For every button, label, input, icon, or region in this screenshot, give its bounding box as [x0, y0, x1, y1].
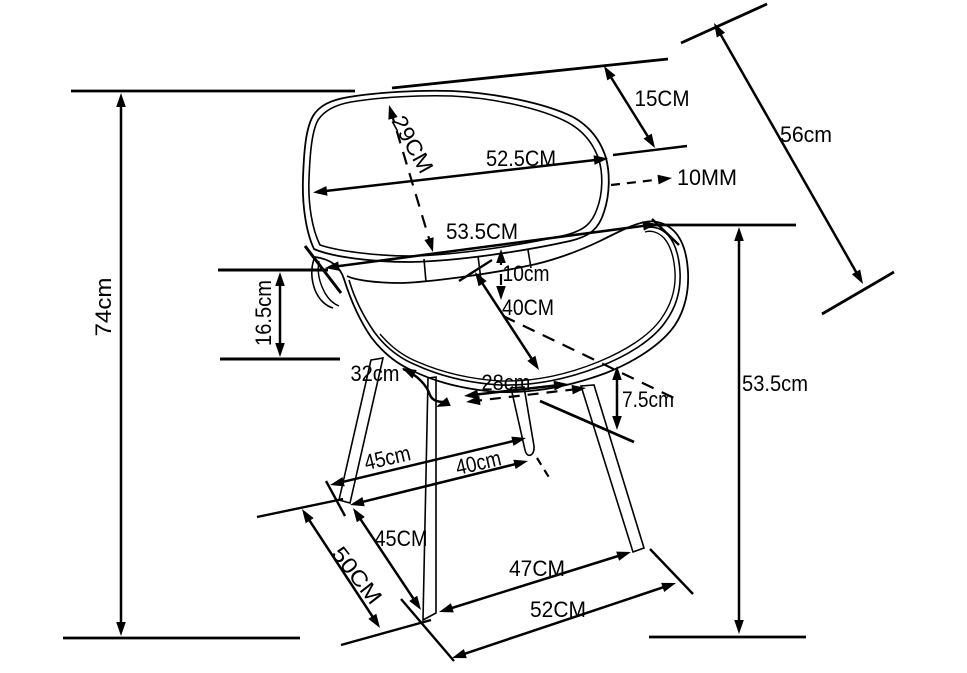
svg-text:74cm: 74cm [91, 278, 116, 337]
svg-text:45CM: 45CM [375, 526, 428, 551]
svg-text:56cm: 56cm [780, 122, 832, 147]
svg-text:15CM: 15CM [635, 86, 690, 111]
svg-text:28cm: 28cm [482, 370, 531, 395]
svg-text:53.5CM: 53.5CM [446, 219, 518, 244]
svg-text:10MM: 10MM [677, 165, 737, 190]
svg-text:29CM: 29CM [387, 111, 439, 177]
svg-text:16.5cm: 16.5cm [251, 280, 276, 346]
svg-text:7.5cm: 7.5cm [622, 387, 674, 412]
svg-text:52.5CM: 52.5CM [486, 146, 556, 171]
svg-text:53.5cm: 53.5cm [742, 371, 808, 396]
svg-text:50CM: 50CM [327, 542, 387, 609]
svg-text:47CM: 47CM [509, 556, 565, 581]
svg-text:32cm: 32cm [351, 361, 400, 386]
svg-text:40cm: 40cm [453, 445, 503, 480]
svg-text:40CM: 40CM [502, 295, 554, 320]
svg-text:52CM: 52CM [530, 597, 586, 622]
svg-text:45cm: 45cm [362, 440, 413, 475]
svg-text:10cm: 10cm [503, 261, 550, 286]
